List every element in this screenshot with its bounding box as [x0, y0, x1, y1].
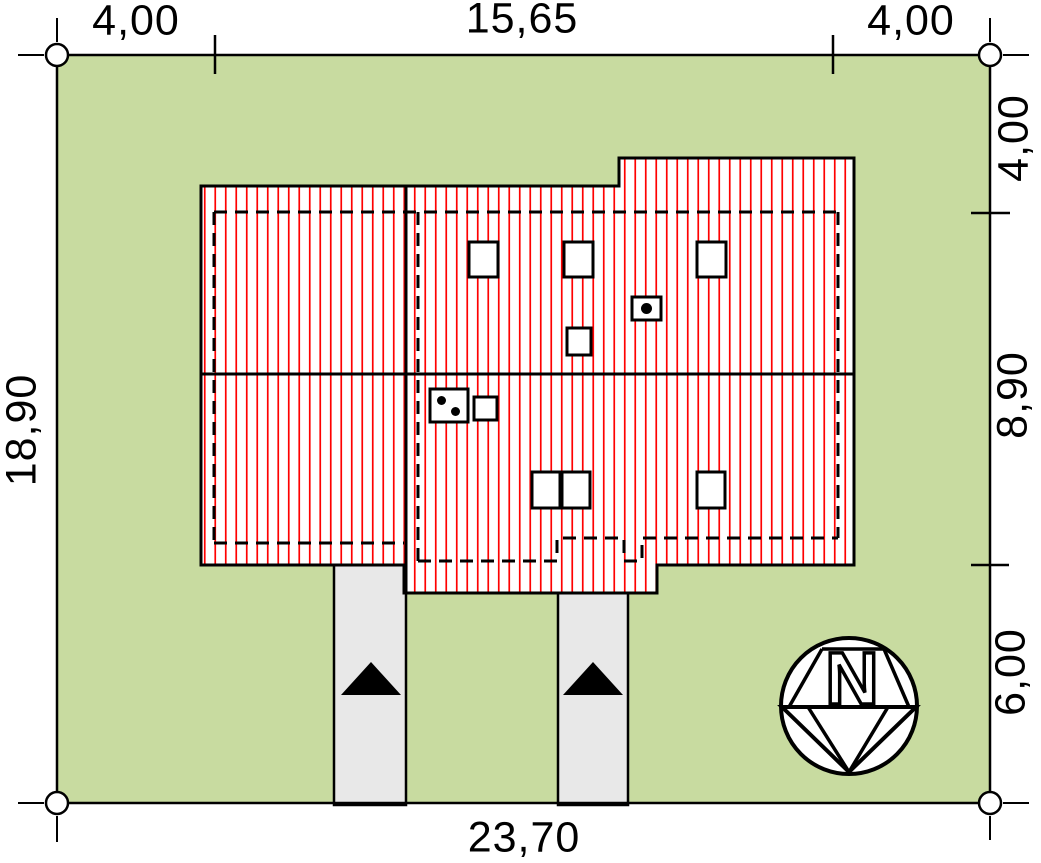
skylight [697, 242, 726, 277]
site-plan: N 4,00 15,65 4,00 18,90 4,00 8,90 6,00 2… [0, 0, 1041, 863]
skylight [469, 242, 498, 277]
vent [474, 397, 497, 420]
vent [567, 328, 591, 355]
skylight [564, 242, 593, 277]
dimension-right-bottom: 6,00 [990, 628, 1033, 716]
corner-marker-top-right [979, 44, 1001, 66]
chimney-flue-dot [451, 407, 460, 416]
dimension-right-middle: 8,90 [992, 351, 1035, 439]
vent-flue-dot [641, 303, 652, 314]
dimension-top-left: 4,00 [92, 0, 180, 43]
site-plan-drawing: N [0, 0, 1041, 863]
house-roof [201, 158, 854, 593]
chimney [430, 389, 468, 422]
skylight [697, 472, 725, 508]
corner-marker-top-left [46, 44, 68, 66]
dimension-top-right: 4,00 [867, 0, 955, 43]
driveway-right [558, 593, 628, 805]
dimension-right-top: 4,00 [993, 94, 1036, 182]
corner-marker-bottom-left [46, 792, 68, 814]
dimension-bottom: 23,70 [468, 817, 581, 860]
chimney-flue-dot [437, 396, 446, 405]
skylight [562, 472, 590, 508]
north-compass-icon: N [781, 637, 917, 774]
corner-marker-bottom-right [979, 792, 1001, 814]
skylight [532, 472, 560, 508]
dimension-top-middle: 15,65 [466, 0, 579, 41]
dimension-left-side: 18,90 [1, 374, 44, 487]
